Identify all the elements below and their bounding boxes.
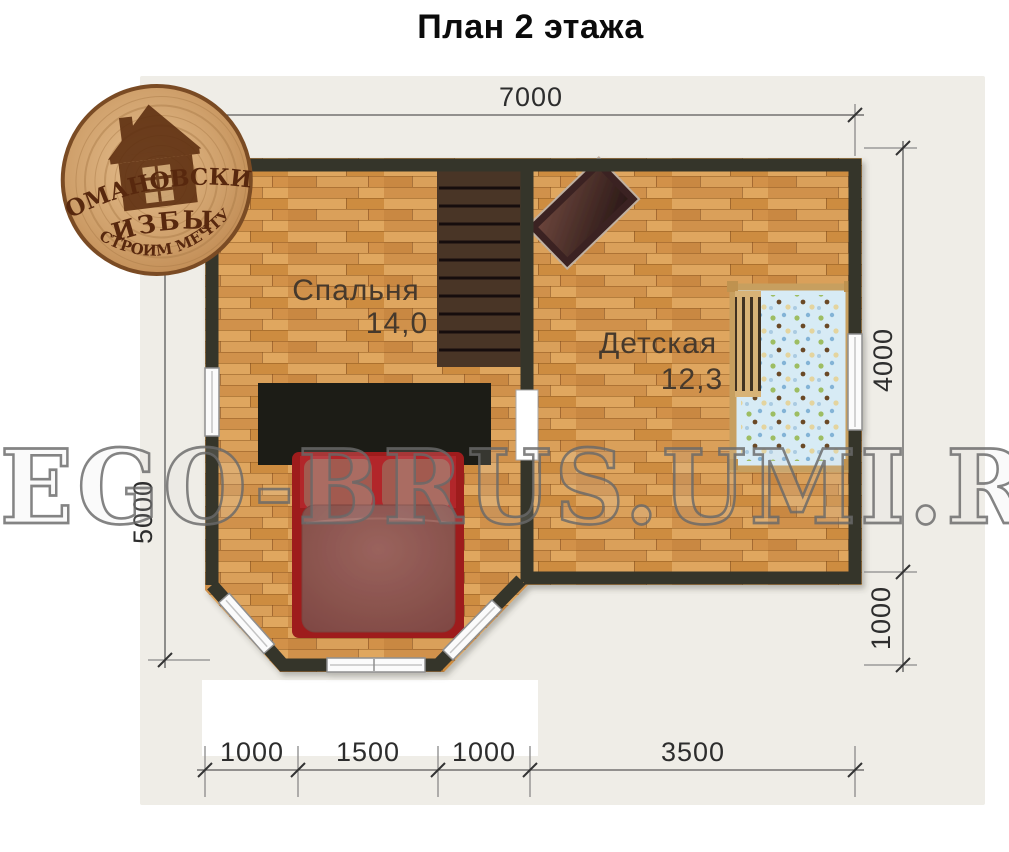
crib-ladder [735,291,761,397]
staircase [437,170,521,367]
window-right [848,334,862,430]
window-left [205,368,219,436]
room-area-bedroom: 14,0 [366,307,428,340]
double-bed [292,452,464,638]
room-name-bedroom: Спальня [292,274,420,307]
room-name-children: Детская [599,327,717,360]
building-plan [205,157,862,672]
dimension-label: 3500 [661,737,725,767]
dimension-label: 7000 [499,82,563,112]
dimension-label: 4000 [868,328,898,392]
floor-plan-page: План 2 этажа [0,0,1009,852]
dimension-label: 1000 [452,737,516,767]
dimension-label: 1500 [336,737,400,767]
dimension-right: 4000 1000 [864,141,917,672]
crib [727,281,855,470]
door-opening [516,390,538,460]
company-logo: РОМАНОВСКИЕ ИЗБЫ СТРОИМ МЕЧТУ [57,82,257,277]
dimension-top: 7000 [197,82,864,156]
dimension-label: 5000 [128,480,158,544]
window-bay-bottom [327,658,425,672]
dimension-label: 1000 [220,737,284,767]
dimension-label: 1000 [866,586,896,650]
room-area-children: 12,3 [661,363,723,396]
